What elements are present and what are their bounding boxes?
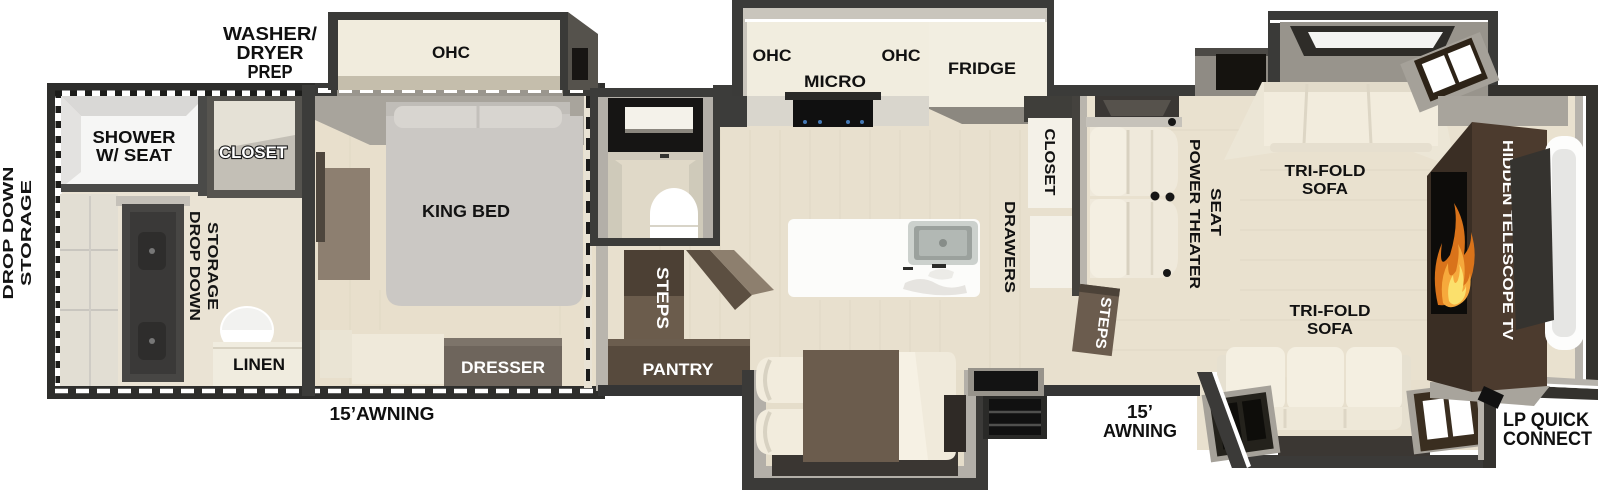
svg-text:SHOWER: SHOWER bbox=[93, 127, 176, 147]
svg-text:SOFA: SOFA bbox=[1307, 321, 1353, 338]
svg-text:DROP DOWN: DROP DOWN bbox=[0, 167, 17, 300]
svg-text:DRYER: DRYER bbox=[237, 43, 304, 63]
svg-text:WASHER/: WASHER/ bbox=[223, 24, 317, 44]
svg-text:CLOSET: CLOSET bbox=[1041, 129, 1057, 196]
svg-text:KING BED: KING BED bbox=[422, 201, 510, 221]
svg-text:STORAGE: STORAGE bbox=[18, 180, 35, 286]
svg-text:LINEN: LINEN bbox=[233, 356, 285, 374]
svg-text:STORAGE: STORAGE bbox=[204, 222, 221, 310]
svg-text:POWER THEATER: POWER THEATER bbox=[1186, 139, 1203, 289]
svg-text:LP QUICK: LP QUICK bbox=[1503, 410, 1589, 431]
svg-text:PANTRY: PANTRY bbox=[643, 360, 715, 379]
svg-text:SEAT: SEAT bbox=[1207, 188, 1224, 236]
svg-text:15’AWNING: 15’AWNING bbox=[330, 404, 435, 424]
svg-text:STEPS: STEPS bbox=[653, 267, 671, 329]
svg-text:AWNING: AWNING bbox=[1103, 421, 1177, 441]
svg-text:CONNECT: CONNECT bbox=[1503, 429, 1592, 450]
svg-text:TRI-FOLD: TRI-FOLD bbox=[1290, 303, 1371, 320]
svg-text:DROP DOWN: DROP DOWN bbox=[186, 211, 203, 321]
svg-text:FRIDGE: FRIDGE bbox=[948, 59, 1016, 78]
svg-text:OHC: OHC bbox=[432, 43, 470, 62]
svg-text:15’: 15’ bbox=[1127, 402, 1153, 422]
svg-text:TRI-FOLD: TRI-FOLD bbox=[1285, 163, 1366, 180]
svg-text:DRESSER: DRESSER bbox=[461, 358, 545, 377]
svg-text:OHC: OHC bbox=[753, 46, 792, 65]
svg-text:MICRO: MICRO bbox=[804, 72, 866, 91]
svg-text:OHC: OHC bbox=[882, 46, 921, 65]
svg-text:W/ SEAT: W/ SEAT bbox=[96, 145, 172, 165]
svg-text:CLOSET: CLOSET bbox=[219, 144, 287, 162]
svg-text:SOFA: SOFA bbox=[1302, 181, 1348, 198]
svg-text:DRAWERS: DRAWERS bbox=[1001, 201, 1017, 293]
svg-text:PREP: PREP bbox=[248, 62, 293, 82]
